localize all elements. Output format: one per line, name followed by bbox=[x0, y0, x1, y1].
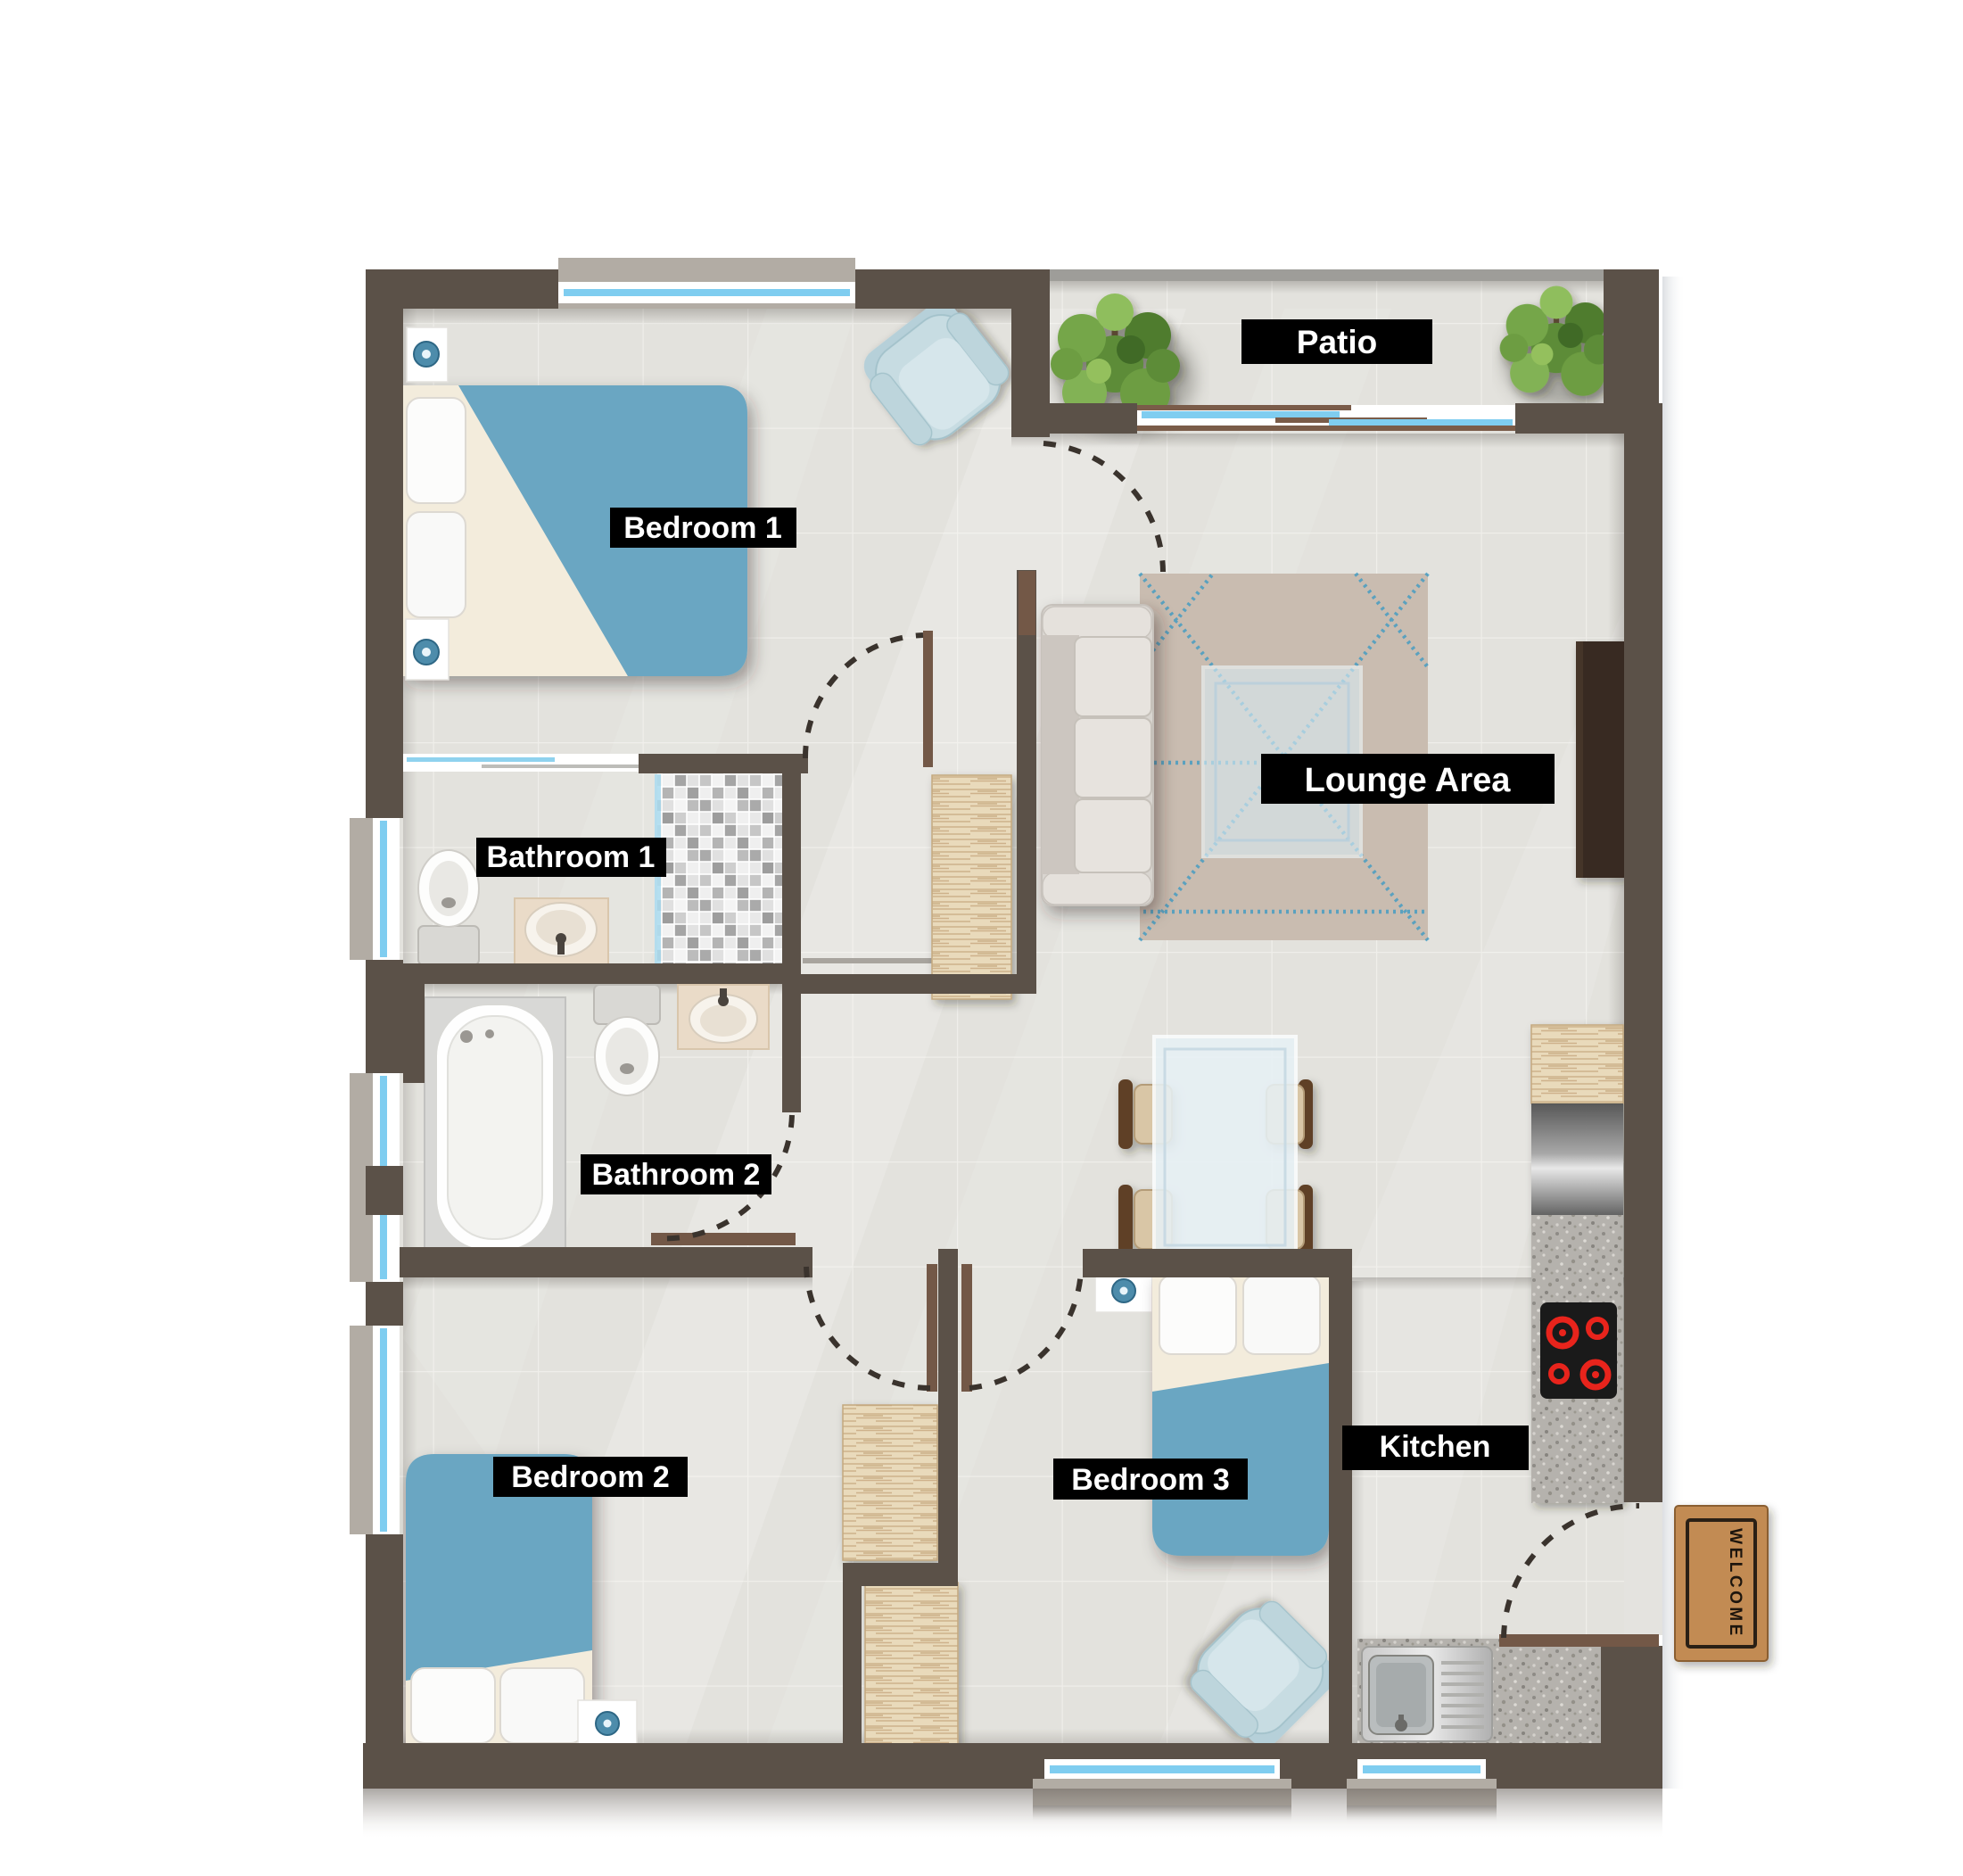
svg-text:Bedroom 3: Bedroom 3 bbox=[1071, 1463, 1230, 1497]
svg-text:Kitchen: Kitchen bbox=[1380, 1430, 1491, 1464]
svg-text:Bedroom 1: Bedroom 1 bbox=[623, 511, 782, 545]
svg-text:Bathroom 1: Bathroom 1 bbox=[487, 840, 656, 874]
svg-text:Patio: Patio bbox=[1297, 324, 1377, 360]
svg-text:Bathroom 2: Bathroom 2 bbox=[592, 1158, 761, 1192]
svg-text:Lounge Area: Lounge Area bbox=[1305, 762, 1512, 799]
svg-text:Bedroom 2: Bedroom 2 bbox=[511, 1460, 670, 1494]
svg-text:WELCOME: WELCOME bbox=[1726, 1528, 1744, 1639]
